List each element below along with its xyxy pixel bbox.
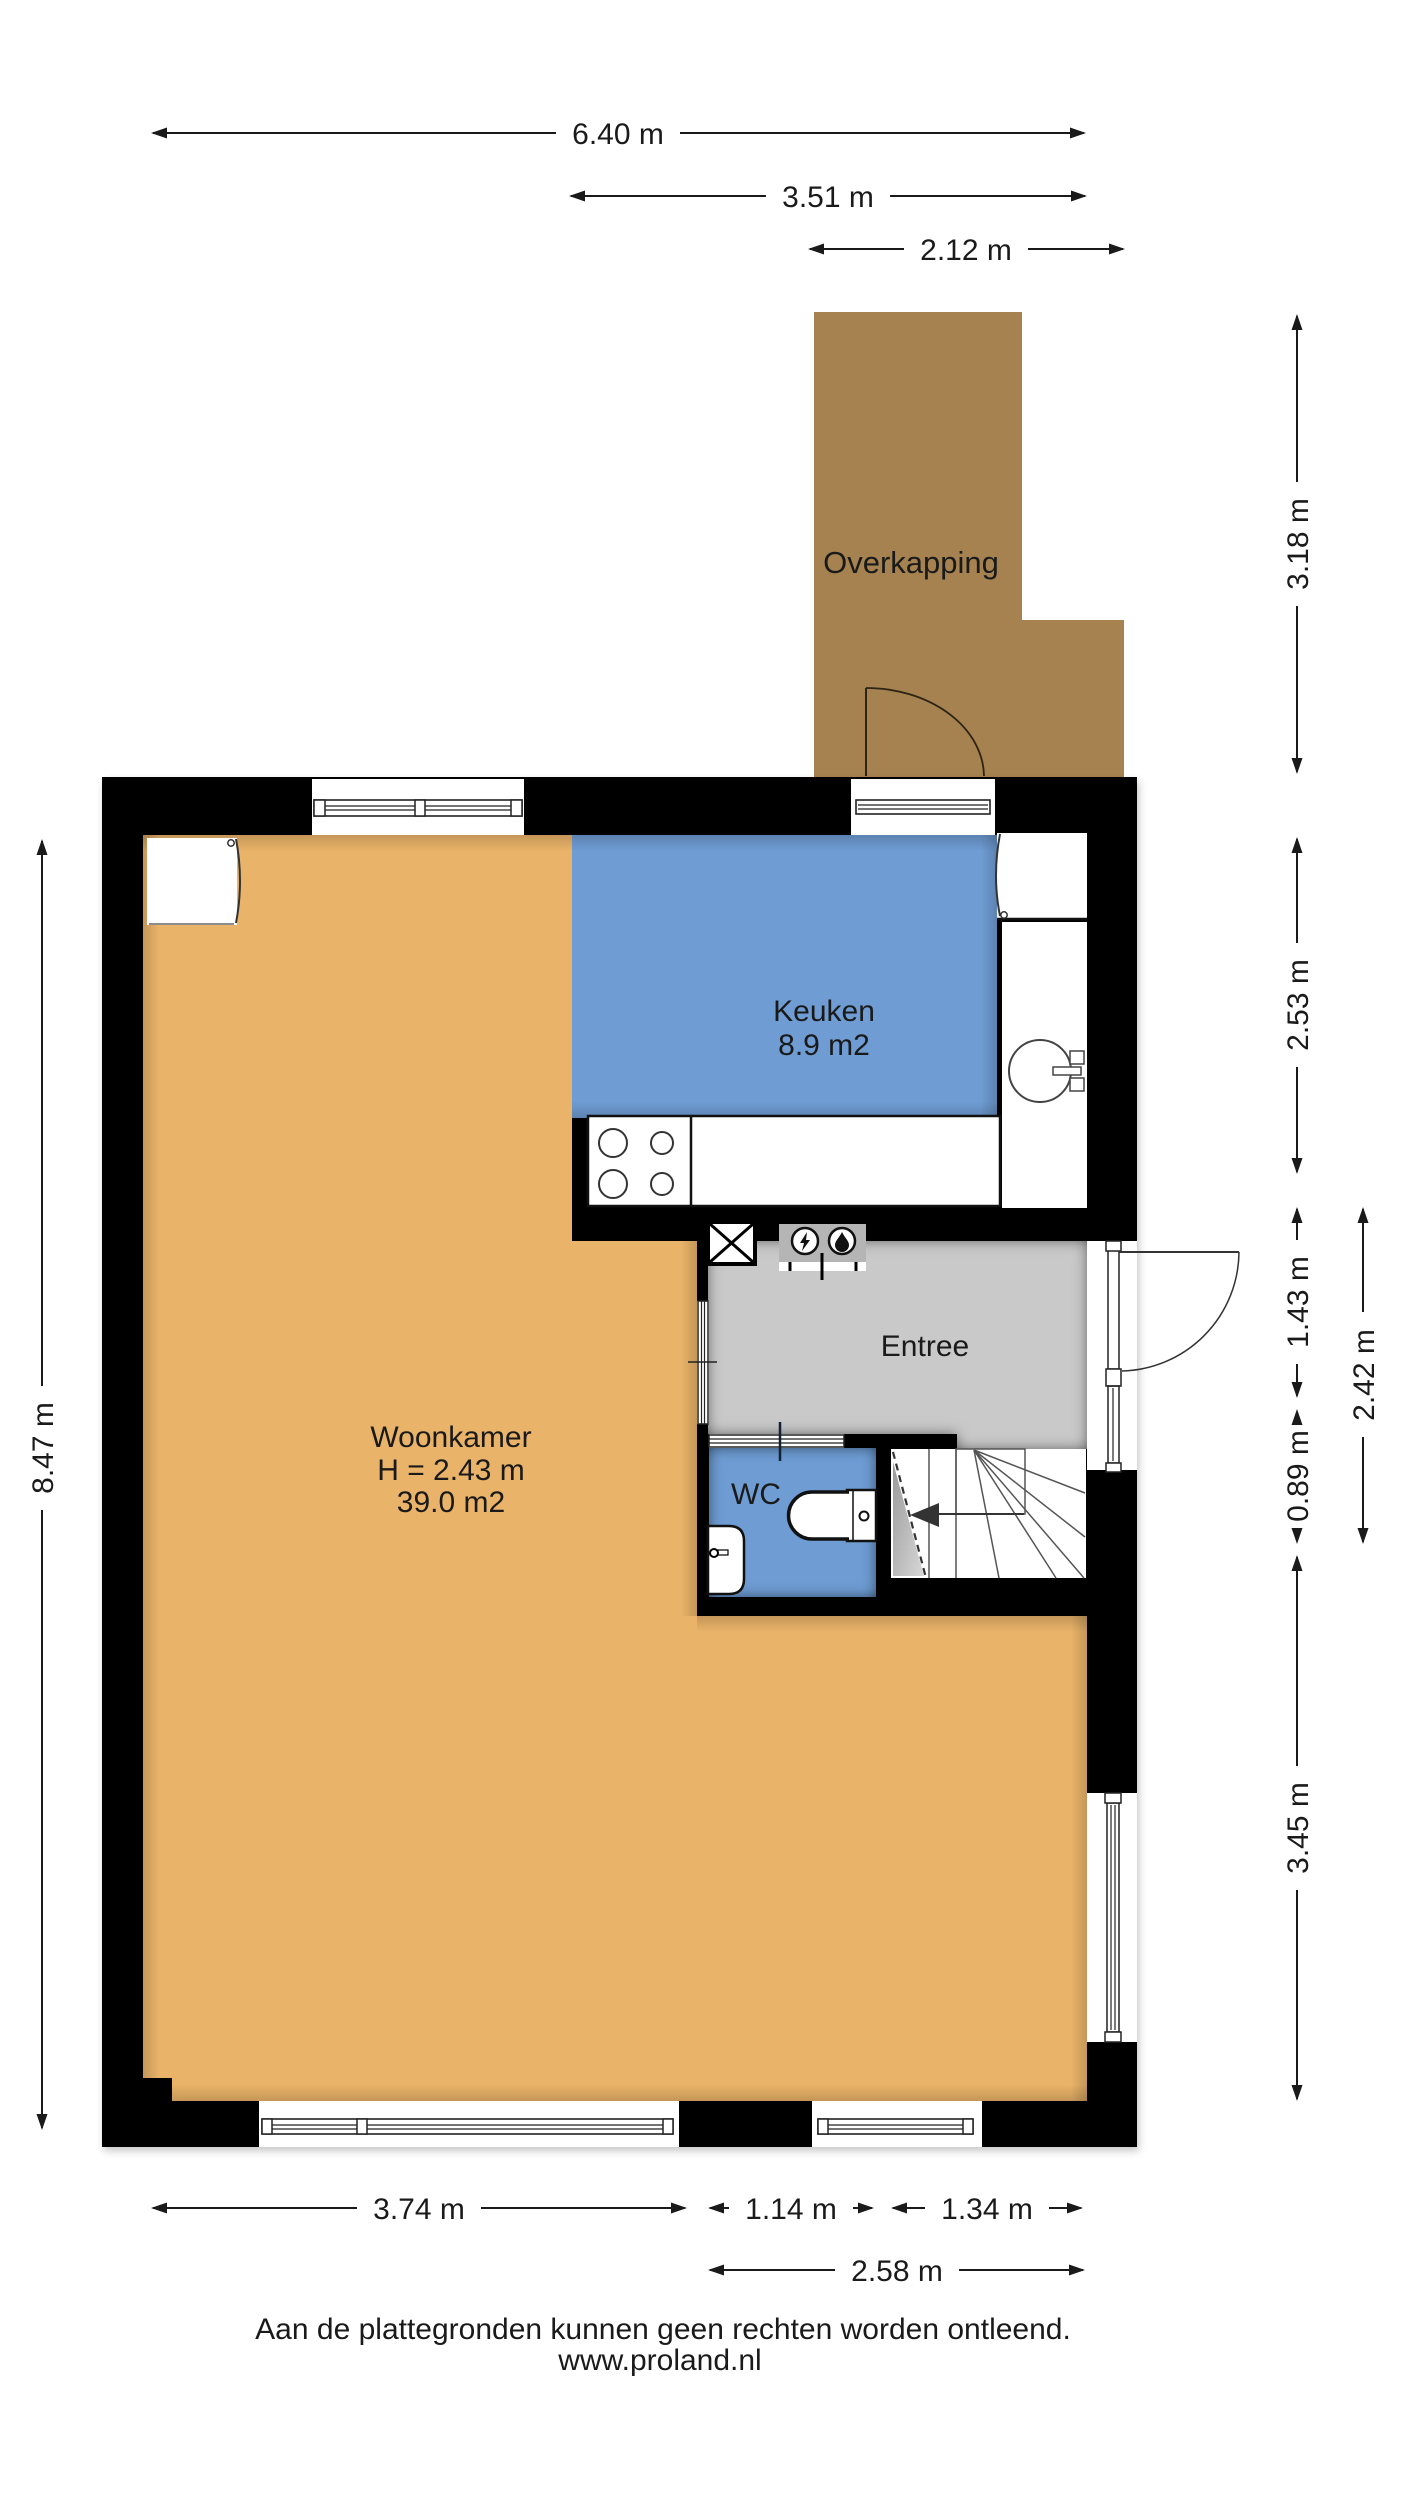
svg-text:Entree: Entree [881, 1330, 969, 1363]
svg-text:2.42 m: 2.42 m [1348, 1329, 1381, 1421]
svg-text:3.18 m: 3.18 m [1282, 498, 1315, 590]
svg-text:3.51 m: 3.51 m [782, 181, 874, 214]
svg-text:3.45 m: 3.45 m [1282, 1782, 1315, 1874]
svg-text:Keuken: Keuken [773, 995, 875, 1028]
svg-text:1.34 m: 1.34 m [941, 2193, 1033, 2226]
svg-text:Overkapping: Overkapping [823, 545, 999, 580]
svg-text:Aan de plattegronden kunnen ge: Aan de plattegronden kunnen geen rechten… [255, 2313, 1071, 2346]
svg-text:H = 2.43 m: H = 2.43 m [377, 1454, 525, 1487]
svg-text:WC: WC [731, 1478, 781, 1511]
svg-text:6.40 m: 6.40 m [572, 118, 664, 151]
svg-text:Woonkamer: Woonkamer [370, 1421, 531, 1454]
svg-text:1.14 m: 1.14 m [745, 2193, 837, 2226]
svg-text:8.47 m: 8.47 m [27, 1402, 60, 1494]
svg-text:2.58 m: 2.58 m [851, 2255, 943, 2288]
svg-text:1.43 m: 1.43 m [1282, 1256, 1315, 1348]
svg-text:0.89 m: 0.89 m [1282, 1430, 1315, 1522]
svg-text:39.0 m2: 39.0 m2 [397, 1486, 505, 1519]
svg-text:www.proland.nl: www.proland.nl [557, 2344, 761, 2377]
svg-text:2.12 m: 2.12 m [920, 234, 1012, 267]
svg-text:3.74 m: 3.74 m [373, 2193, 465, 2226]
svg-text:2.53 m: 2.53 m [1282, 959, 1315, 1051]
svg-text:8.9 m2: 8.9 m2 [778, 1029, 870, 1062]
